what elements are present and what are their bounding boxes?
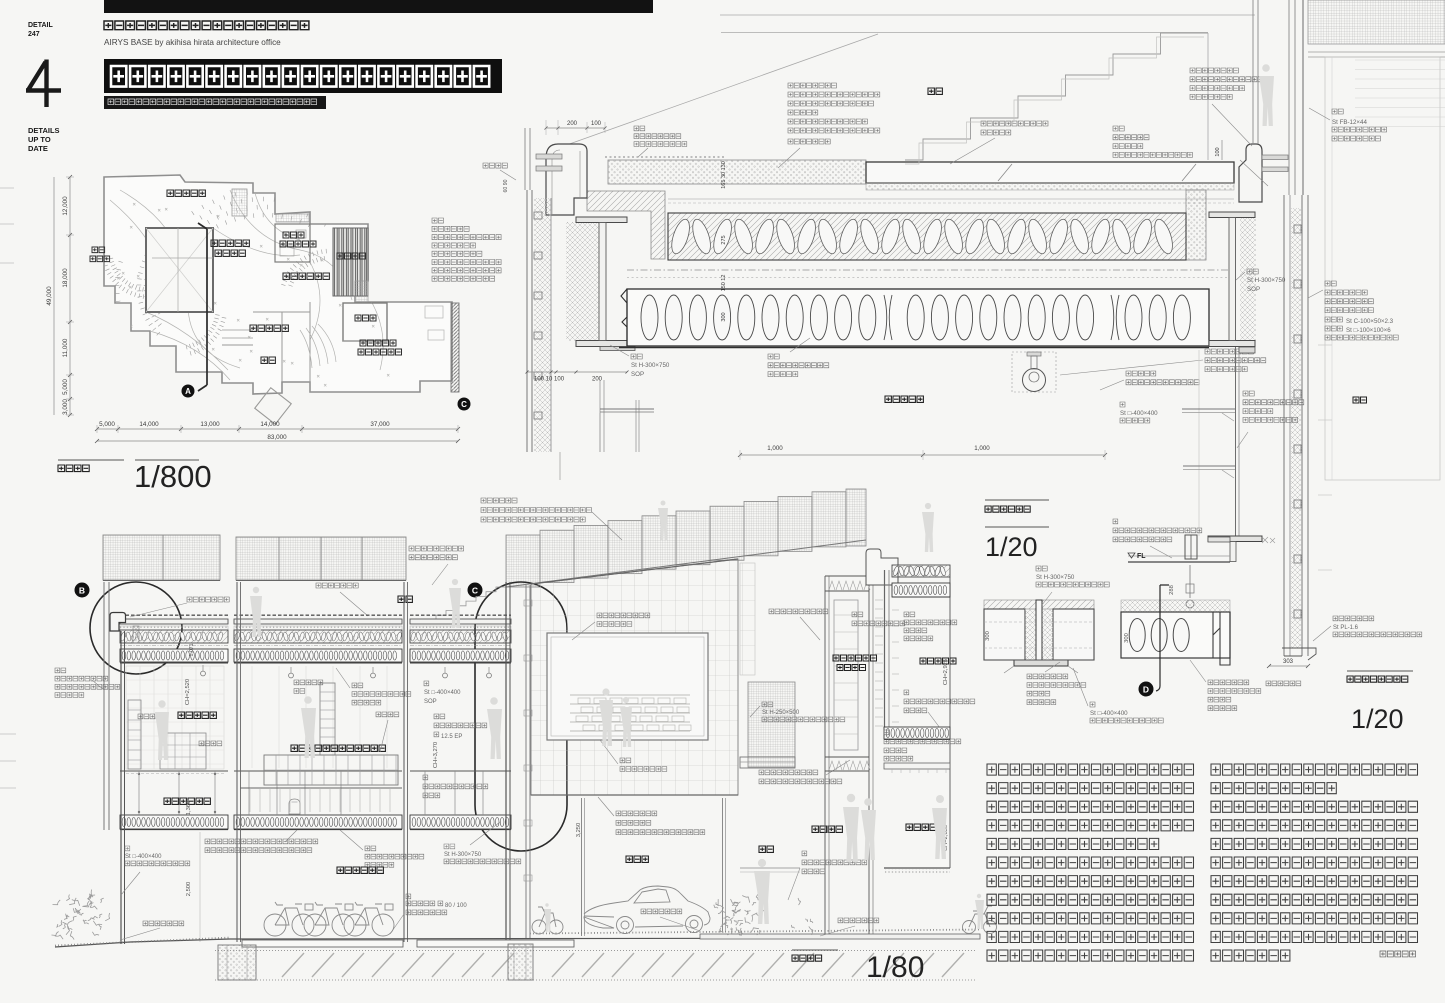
svg-text:St C-100×50×2.3: St C-100×50×2.3: [1346, 318, 1394, 325]
svg-text:1,000: 1,000: [767, 445, 783, 452]
svg-text:49,000: 49,000: [46, 286, 53, 306]
svg-text:UP TO: UP TO: [28, 135, 51, 144]
svg-text:18,000: 18,000: [62, 268, 69, 288]
svg-text:200: 200: [567, 121, 578, 127]
svg-text:11,000: 11,000: [62, 338, 69, 357]
svg-text:200: 200: [592, 377, 603, 383]
svg-text:80 / 100: 80 / 100: [445, 903, 467, 909]
svg-text:St PL-1.6: St PL-1.6: [1333, 625, 1359, 631]
svg-text:60 90: 60 90: [503, 179, 509, 192]
svg-text:5,000: 5,000: [99, 421, 115, 428]
svg-text:DETAILS: DETAILS: [28, 126, 60, 135]
svg-text:St □-100×100×6: St □-100×100×6: [1346, 327, 1391, 334]
svg-text:C: C: [461, 400, 467, 409]
svg-text:300: 300: [985, 631, 991, 641]
svg-text:150 12: 150 12: [721, 275, 727, 292]
svg-text:83,000: 83,000: [267, 434, 287, 441]
svg-text:247: 247: [28, 31, 40, 38]
svg-text:CH=2,520: CH=2,520: [185, 679, 191, 705]
svg-text:1,071: 1,071: [189, 643, 195, 656]
svg-text:St □-400×400: St □-400×400: [1090, 710, 1128, 717]
svg-text:275: 275: [721, 235, 727, 244]
svg-text:B: B: [79, 586, 85, 596]
svg-text:1/800: 1/800: [134, 459, 212, 494]
svg-text:1/20: 1/20: [985, 532, 1038, 562]
svg-text:A: A: [185, 387, 191, 396]
svg-text:3,250: 3,250: [576, 823, 582, 838]
svg-text:303: 303: [1283, 659, 1294, 665]
svg-text:1,360: 1,360: [186, 801, 192, 816]
svg-text:SOP: SOP: [1247, 286, 1260, 293]
svg-text:St H-300×750: St H-300×750: [1036, 574, 1075, 581]
svg-text:3,000: 3,000: [62, 399, 69, 415]
svg-text:12.5 EP: 12.5 EP: [441, 734, 462, 740]
svg-text:100 10 100: 100 10 100: [534, 377, 565, 383]
svg-text:1,000: 1,000: [974, 445, 990, 452]
svg-text:12,000: 12,000: [62, 196, 69, 216]
svg-text:FL: FL: [1137, 553, 1146, 560]
svg-text:CH=2,925: CH=2,925: [943, 659, 949, 685]
svg-text:SOP: SOP: [424, 699, 437, 705]
svg-text:St □-400×400: St □-400×400: [424, 690, 461, 696]
svg-text:D: D: [1143, 685, 1149, 695]
svg-text:St □-400×400: St □-400×400: [125, 854, 162, 860]
svg-text:CH+3,270: CH+3,270: [433, 742, 439, 768]
svg-text:100: 100: [1215, 147, 1221, 156]
svg-text:St H-300×750: St H-300×750: [444, 852, 482, 858]
svg-text:1/80: 1/80: [866, 951, 924, 984]
svg-text:SOP: SOP: [631, 371, 644, 378]
svg-text:2,500: 2,500: [186, 882, 192, 897]
svg-text:DETAIL: DETAIL: [28, 22, 53, 29]
svg-text:1/20: 1/20: [1351, 704, 1404, 734]
svg-text:37,000: 37,000: [370, 421, 390, 428]
svg-text:St H-300×750: St H-300×750: [631, 362, 670, 369]
svg-text:C: C: [472, 586, 478, 596]
svg-text:100: 100: [591, 121, 602, 127]
svg-text:288: 288: [1169, 585, 1175, 595]
svg-text:St FB-12×44: St FB-12×44: [1332, 119, 1367, 126]
svg-text:AIRYS BASE by akihisa hirata a: AIRYS BASE by akihisa hirata architectur…: [104, 38, 281, 47]
svg-text:St □-400×400: St □-400×400: [1120, 410, 1158, 417]
svg-text:300: 300: [721, 312, 727, 321]
svg-text:St H-250×500: St H-250×500: [762, 710, 800, 716]
svg-text:DATE: DATE: [28, 144, 48, 153]
svg-text:13,000: 13,000: [200, 421, 220, 428]
svg-text:St H-300×750: St H-300×750: [1247, 277, 1286, 284]
svg-text:300: 300: [1124, 633, 1130, 643]
svg-text:165 30 130: 165 30 130: [721, 161, 727, 189]
svg-text:14,000: 14,000: [260, 421, 280, 428]
svg-text:14,000: 14,000: [139, 421, 159, 428]
svg-text:5,000: 5,000: [62, 379, 69, 395]
